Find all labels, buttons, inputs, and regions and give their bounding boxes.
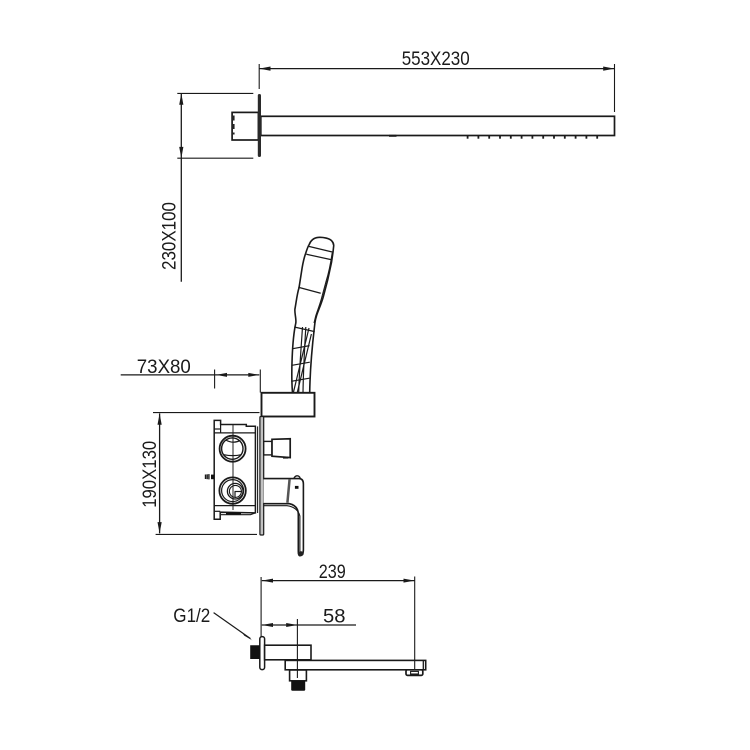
svg-text:230X100: 230X100 <box>159 202 181 270</box>
svg-text:239: 239 <box>319 561 346 583</box>
svg-text:190X130: 190X130 <box>139 441 161 508</box>
svg-text:73X80: 73X80 <box>137 356 191 378</box>
svg-text:58: 58 <box>323 606 346 628</box>
svg-text:G1/2: G1/2 <box>173 605 210 627</box>
svg-text:553X230: 553X230 <box>402 48 470 70</box>
